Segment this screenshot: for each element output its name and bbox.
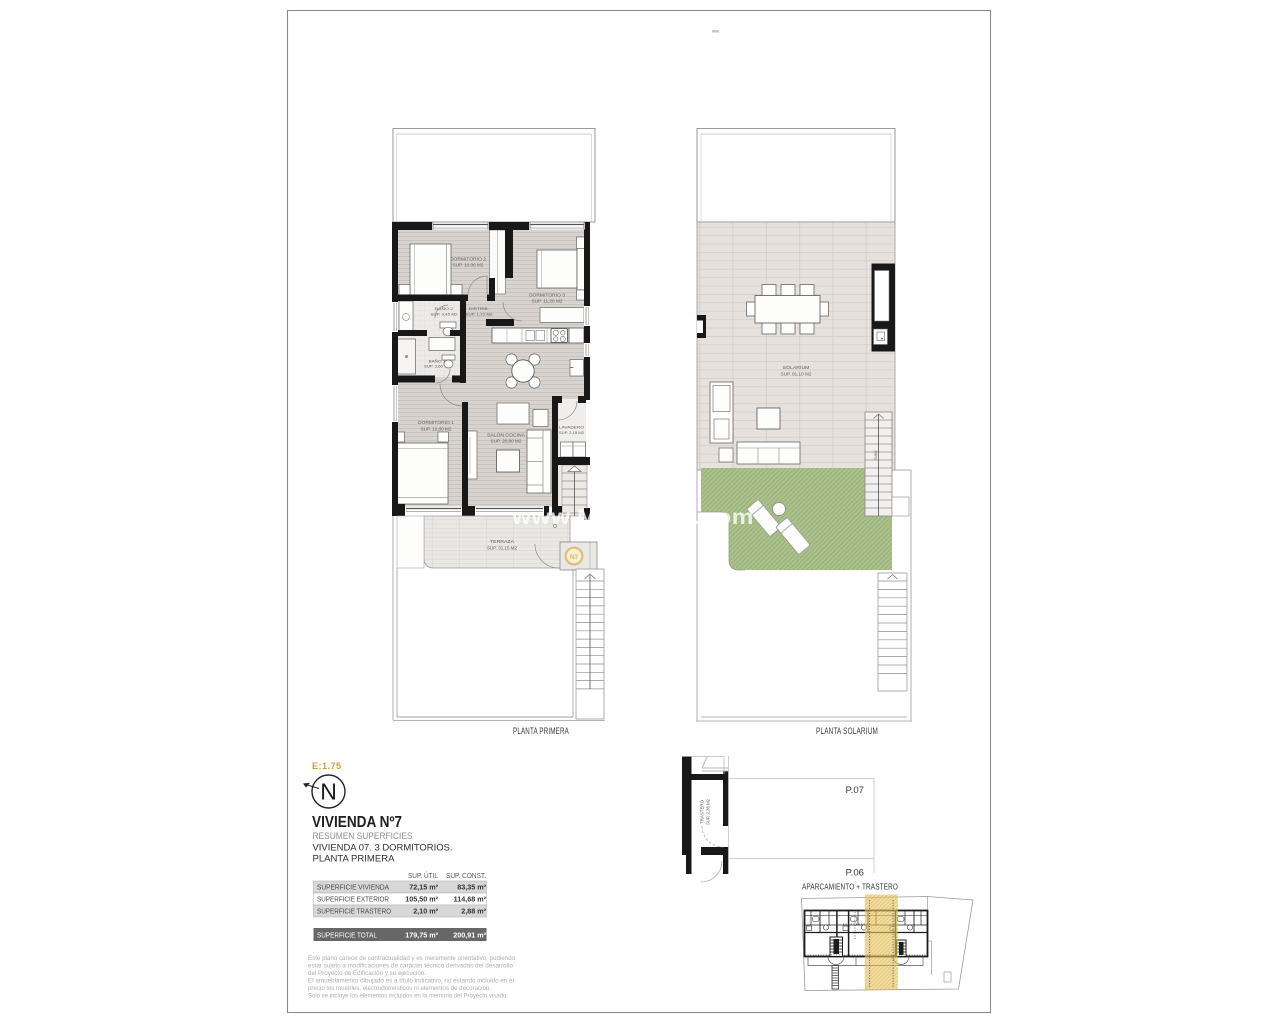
svg-text:SUBE: SUBE: [874, 450, 878, 460]
svg-text:www.Medit.eco.com: www.Medit.eco.com: [511, 505, 754, 529]
svg-text:SUP. 10,06 M2: SUP. 10,06 M2: [453, 263, 485, 268]
svg-text:E:1.75: E:1.75: [312, 761, 341, 771]
svg-text:SUP. 3,45 M2: SUP. 3,45 M2: [431, 312, 459, 317]
svg-text:SUPERFICIE VIVIENDA: SUPERFICIE VIVIENDA: [317, 883, 389, 892]
svg-text:SUP. 2,36 M2: SUP. 2,36 M2: [706, 798, 711, 825]
svg-text:DISTRIB.: DISTRIB.: [469, 306, 489, 311]
svg-text:72,15 m²: 72,15 m²: [409, 883, 438, 892]
svg-text:estar sujeto a modificaciones: estar sujeto a modificaciones de carácte…: [308, 963, 513, 970]
svg-text:El amueblamiento dibujado es a: El amueblamiento dibujado es a título in…: [308, 978, 514, 985]
svg-text:SALÓN COCINA: SALÓN COCINA: [487, 433, 525, 438]
svg-text:SUP. CONST.: SUP. CONST.: [446, 871, 486, 880]
svg-text:SUP. 1,10 M2: SUP. 1,10 M2: [466, 312, 494, 317]
svg-text:P.06: P.06: [846, 868, 865, 879]
svg-text:N7: N7: [570, 554, 579, 561]
svg-text:N: N: [320, 779, 337, 805]
svg-text:105,50 m²: 105,50 m²: [405, 895, 438, 904]
svg-text:VIVIENDA Nº7: VIVIENDA Nº7: [312, 814, 402, 831]
svg-text:179,75 m²: 179,75 m²: [405, 931, 438, 940]
svg-text:RESUMEN SUPERFICIES: RESUMEN SUPERFICIES: [313, 831, 413, 841]
svg-text:del Proyecto de Edificación y: del Proyecto de Edificación y su ejecuci…: [308, 970, 426, 977]
svg-text:precio los muebles, electrodom: precio los muebles, electrodomésticos ni…: [308, 985, 491, 992]
svg-text:SOLARIUM: SOLARIUM: [783, 365, 810, 370]
svg-text:2,10 m²: 2,10 m²: [413, 907, 438, 916]
svg-text:DORMITORIO 1: DORMITORIO 1: [418, 420, 455, 425]
svg-text:TERRAZA: TERRAZA: [490, 539, 514, 544]
svg-text:SUP. 81,10 M2: SUP. 81,10 M2: [781, 372, 813, 377]
svg-text:SUPERFICIE TOTAL: SUPERFICIE TOTAL: [317, 931, 377, 940]
svg-text:PLANTA SOLARIUM: PLANTA SOLARIUM: [816, 726, 878, 737]
svg-text:SUPERFICIE EXTERIOR: SUPERFICIE EXTERIOR: [317, 895, 389, 904]
svg-text:SUP. 12,00 M2: SUP. 12,00 M2: [421, 427, 453, 432]
svg-text:APARCAMIENTO + TRASTERO: APARCAMIENTO + TRASTERO: [802, 882, 898, 892]
svg-text:PLANTA PRIMERA: PLANTA PRIMERA: [313, 854, 396, 864]
svg-text:SUPERFICIE TRASTERO: SUPERFICIE TRASTERO: [317, 907, 391, 916]
svg-text:PLANTA PRIMERA: PLANTA PRIMERA: [513, 726, 569, 737]
svg-text:114,68 m²: 114,68 m²: [454, 895, 487, 904]
svg-text:DORMITORIO 3: DORMITORIO 3: [529, 293, 566, 298]
svg-text:VIVIENDA 07. 3 DORMITORIOS.: VIVIENDA 07. 3 DORMITORIOS.: [313, 843, 453, 853]
svg-text:SUP. 20,80 M2: SUP. 20,80 M2: [491, 439, 523, 444]
svg-text:Este plano carece de contractu: Este plano carece de contractualidad y e…: [308, 955, 515, 962]
svg-text:83,35 m²: 83,35 m²: [457, 883, 486, 892]
svg-text:Solo se incluye los elementos: Solo se incluye los elementos incluidos …: [308, 993, 508, 1000]
svg-text:TRASTERO: TRASTERO: [700, 799, 705, 824]
svg-text:SUP. ÚTIL: SUP. ÚTIL: [408, 871, 438, 880]
svg-text:2,88 m²: 2,88 m²: [461, 907, 486, 916]
svg-text:SUP. 31,15 M2: SUP. 31,15 M2: [487, 546, 518, 551]
svg-text:200,91 m²: 200,91 m²: [453, 931, 486, 940]
svg-text:SUP. 2,15 M2: SUP. 2,15 M2: [559, 431, 584, 435]
svg-text:P.07: P.07: [846, 785, 865, 796]
svg-text:LAVADERO: LAVADERO: [559, 426, 584, 430]
svg-text:SUP. 11,20 M2: SUP. 11,20 M2: [532, 299, 564, 304]
svg-text:DORMITORIO 2: DORMITORIO 2: [450, 257, 487, 262]
